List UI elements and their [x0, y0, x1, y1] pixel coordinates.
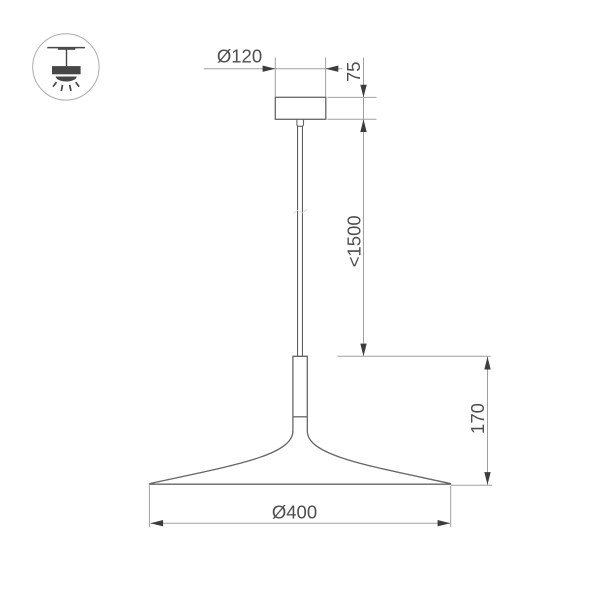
svg-text:Ø400: Ø400: [272, 502, 317, 523]
svg-text:170: 170: [467, 403, 488, 434]
svg-text:75: 75: [343, 62, 364, 83]
svg-text:<1500: <1500: [343, 215, 364, 267]
svg-text:Ø120: Ø120: [217, 46, 262, 67]
